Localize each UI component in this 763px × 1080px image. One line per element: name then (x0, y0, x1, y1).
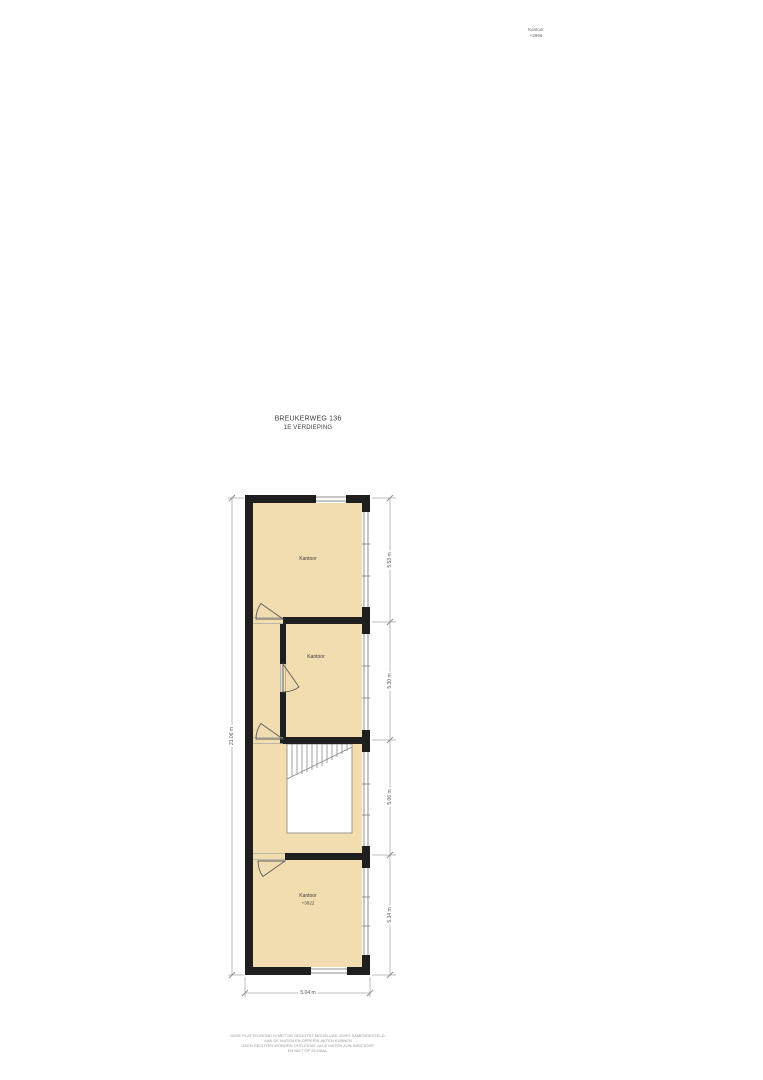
window-right-1 (362, 512, 370, 607)
floor-plan-drawing (0, 0, 763, 1080)
wall-interior-vertical-b (280, 692, 286, 744)
wall-top-left (245, 495, 316, 503)
wall-right-pier-5 (362, 955, 370, 975)
wall-interior-2 (283, 737, 362, 744)
dim-bottom-width: 5.04 m (298, 990, 317, 996)
dim-right-segment-4: 5.34 m (387, 905, 393, 924)
disclaimer-block: DEZE PLATTEGROND IS MET DE GROOTST MOGEL… (230, 1033, 385, 1053)
window-right-3 (362, 752, 370, 846)
wall-interior-3 (285, 853, 362, 860)
staircase (287, 744, 352, 833)
floor-plan-page: Kantoor +2966 BREUKERWEG 136 1E VERDIEPI… (0, 0, 763, 1080)
wall-interior-1 (283, 617, 362, 624)
window-bottom (311, 967, 347, 975)
dim-left-total: 21.06 m (229, 725, 235, 747)
wall-right-pier-2 (362, 607, 370, 634)
plan-title-floor: 1E VERDIEPING (284, 425, 333, 431)
room-label-top: Kantoor (299, 556, 317, 562)
disclaimer-line-4: EN NIET OP SCHAAL. (230, 1048, 385, 1053)
door-opening-3 (253, 853, 285, 860)
room-label-bottom: Kantoor (299, 893, 317, 899)
adjacent-plan-fragment: Kantoor +2966 (528, 27, 544, 39)
wall-left (245, 495, 253, 975)
wall-right-pier-1 (362, 495, 370, 512)
wall-right-pier-3 (362, 730, 370, 752)
wall-interior-vertical-a (280, 624, 286, 664)
adjacent-room-elevation: +2966 (528, 33, 544, 39)
room-label-middle: Kantoor (307, 654, 325, 660)
dim-right-segment-3: 5.06 m (387, 787, 393, 806)
window-right-4 (362, 868, 370, 955)
room-elevation-bottom: +3022 (302, 901, 315, 906)
room-bottom-office (253, 860, 362, 967)
room-middle-office (253, 624, 362, 737)
dim-right-segment-2: 5.30 m (387, 671, 393, 690)
wall-right-pier-4 (362, 846, 370, 868)
door-opening-1 (253, 617, 283, 624)
door-opening-2 (253, 737, 283, 744)
window-right-2 (362, 634, 370, 730)
wall-bottom-left (245, 967, 311, 975)
window-top (316, 495, 346, 503)
plan-title-address: BREUKERWEG 136 (275, 416, 342, 423)
dim-right-segment-1: 5.53 m (387, 550, 393, 569)
